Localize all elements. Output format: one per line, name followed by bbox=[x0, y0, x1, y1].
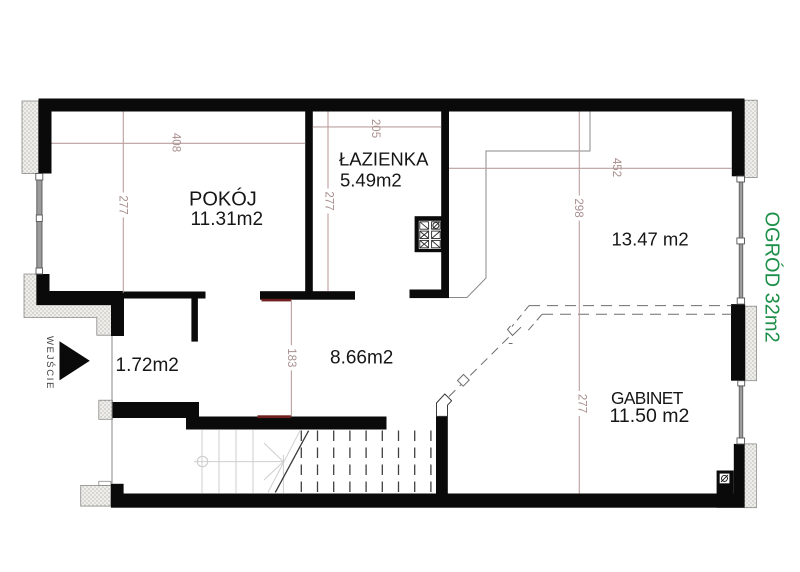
svg-text:5.49m2: 5.49m2 bbox=[340, 170, 402, 191]
svg-text:408: 408 bbox=[170, 133, 182, 152]
svg-text:298: 298 bbox=[572, 198, 584, 217]
svg-text:183: 183 bbox=[285, 348, 297, 367]
svg-text:11.31m2: 11.31m2 bbox=[191, 209, 264, 230]
svg-text:1.72m2: 1.72m2 bbox=[116, 355, 179, 376]
svg-text:POKÓJ: POKÓJ bbox=[189, 188, 257, 211]
svg-text:277: 277 bbox=[117, 195, 129, 214]
svg-text:13.47 m2: 13.47 m2 bbox=[612, 229, 689, 250]
svg-text:205: 205 bbox=[369, 119, 381, 138]
svg-text:OGRÓD 32m2: OGRÓD 32m2 bbox=[761, 212, 784, 343]
svg-text:11.50 m2: 11.50 m2 bbox=[610, 405, 690, 427]
svg-text:277: 277 bbox=[576, 394, 588, 413]
svg-text:8.66m2: 8.66m2 bbox=[330, 348, 393, 369]
svg-text:277: 277 bbox=[323, 191, 335, 210]
svg-text:ŁAZIENKA: ŁAZIENKA bbox=[339, 149, 429, 170]
svg-text:452: 452 bbox=[610, 158, 622, 177]
svg-text:WEJŚCIE: WEJŚCIE bbox=[44, 336, 56, 390]
